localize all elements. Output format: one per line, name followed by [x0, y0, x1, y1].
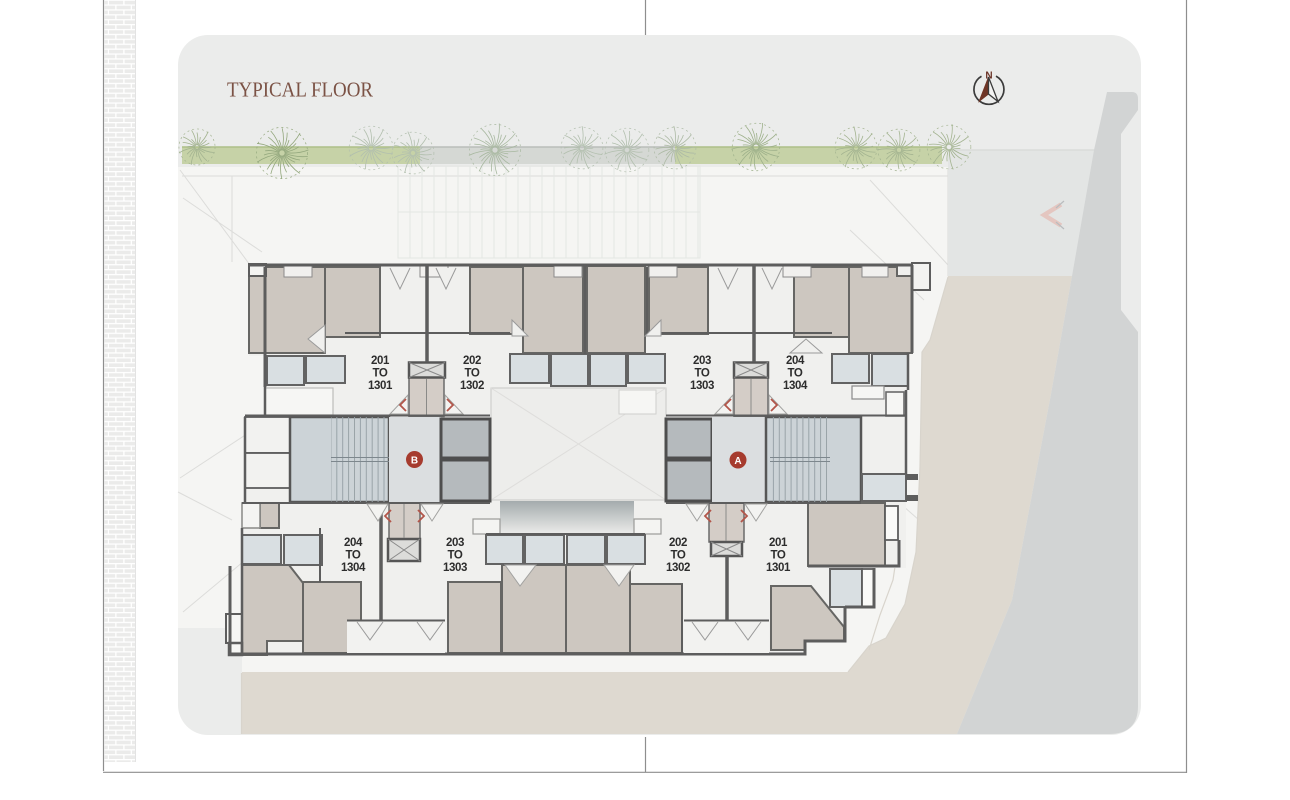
- svg-text:203: 203: [446, 537, 464, 549]
- svg-text:TO: TO: [771, 550, 786, 562]
- svg-text:A: A: [734, 456, 741, 467]
- svg-text:TYPICAL FLOOR: TYPICAL FLOOR: [227, 78, 374, 102]
- svg-text:1304: 1304: [341, 562, 366, 574]
- svg-text:1302: 1302: [666, 562, 690, 574]
- svg-text:204: 204: [344, 537, 363, 549]
- svg-text:1304: 1304: [783, 380, 808, 392]
- svg-text:202: 202: [463, 355, 481, 367]
- svg-text:202: 202: [669, 537, 687, 549]
- svg-text:B: B: [411, 456, 418, 467]
- svg-text:1303: 1303: [443, 562, 467, 574]
- svg-text:203: 203: [693, 355, 711, 367]
- svg-text:TO: TO: [671, 550, 686, 562]
- svg-text:TO: TO: [448, 550, 463, 562]
- svg-text:201: 201: [769, 537, 788, 549]
- svg-text:204: 204: [786, 355, 805, 367]
- svg-text:1303: 1303: [690, 380, 714, 392]
- svg-text:201: 201: [371, 355, 390, 367]
- svg-text:TO: TO: [695, 368, 710, 380]
- svg-text:TO: TO: [373, 368, 388, 380]
- svg-text:TO: TO: [465, 368, 480, 380]
- svg-text:1302: 1302: [460, 380, 484, 392]
- svg-text:1301: 1301: [766, 562, 791, 574]
- svg-text:TO: TO: [346, 550, 361, 562]
- svg-text:1301: 1301: [368, 380, 393, 392]
- svg-text:TO: TO: [788, 368, 803, 380]
- svg-text:N: N: [985, 71, 992, 82]
